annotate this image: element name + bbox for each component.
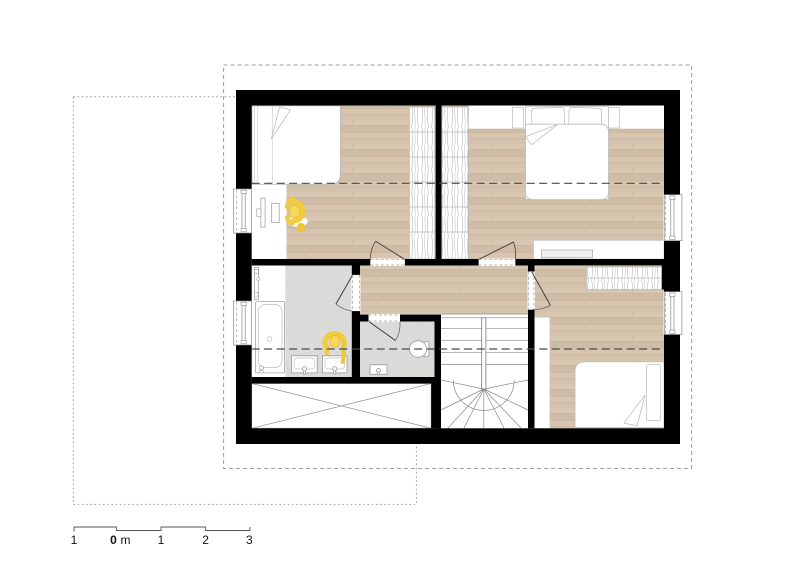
svg-text:3: 3 [246, 533, 253, 547]
svg-text:2: 2 [202, 533, 209, 547]
svg-text:m: m [121, 533, 131, 547]
svg-text:1: 1 [158, 533, 165, 547]
svg-text:1: 1 [71, 533, 78, 547]
svg-text:0: 0 [110, 533, 117, 547]
